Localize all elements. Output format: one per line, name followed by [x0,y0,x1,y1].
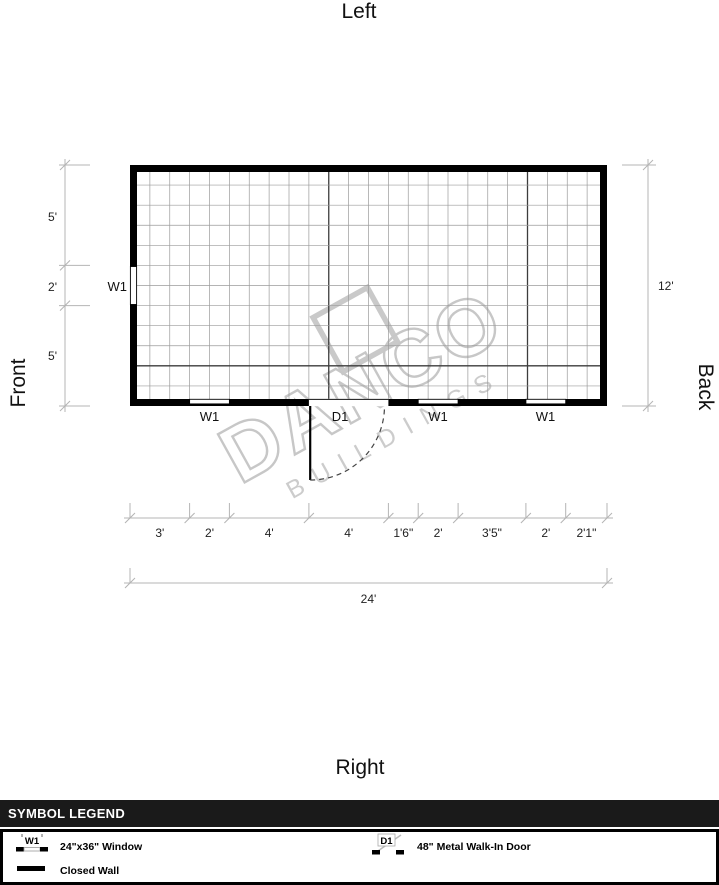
dim-left-2: 2' [48,280,57,294]
window-bottom-3 [526,399,566,404]
dim-bottom-2: 2' [205,526,214,540]
label-door-bottom: D1 [332,409,349,424]
dim-bottom-7: 3'5" [482,526,502,540]
dim-bottom-1: 3' [155,526,164,540]
label-window-bottom-1: W1 [200,409,220,424]
label-window-bottom-2: W1 [428,409,448,424]
watermark: DANCO BUILDINGS [186,238,531,523]
closed-wall-symbol-icon [17,866,45,871]
label-window-bottom-3: W1 [536,409,556,424]
legend-window-label: 24"x36" Window [60,841,142,853]
window-bottom-2 [418,399,458,404]
dim-bottom-5: 1'6" [393,526,413,540]
floor-grid [137,172,600,399]
legend-door-label: 48" Metal Walk-In Door [417,841,531,853]
dim-bottom-3: 4' [265,526,274,540]
legend-closed-wall-label: Closed Wall [60,865,119,877]
floor-plan-page: Left Right Front Back DANCO BUILDINGS [0,0,719,885]
door-opening [309,399,389,406]
dim-right-total: 12' [658,279,674,293]
legend-window-symbol-text: W1 [25,836,40,847]
dim-bottom-6: 2' [434,526,443,540]
dim-bottom-9: 2'1" [576,526,596,540]
window-left-wall [130,267,136,305]
window-bottom-1 [190,399,230,404]
dim-bottom-total: 24' [361,592,377,606]
dim-left-1: 5' [48,210,57,224]
label-window-left: W1 [108,279,128,294]
legend-header: SYMBOL LEGEND [0,800,719,827]
legend-door-symbol-text: D1 [380,836,393,847]
dim-left-3: 5' [48,349,57,363]
symbol-legend: SYMBOL LEGEND W1 24"x36" Window D1 [0,800,719,885]
floor-plan-drawing: DANCO BUILDINGS 5' 2' 5' 12' [0,0,719,790]
legend-body: W1 24"x36" Window D1 48" Metal Walk-In D… [0,829,719,885]
dim-bottom-4: 4' [344,526,353,540]
dim-bottom-8: 2' [541,526,550,540]
